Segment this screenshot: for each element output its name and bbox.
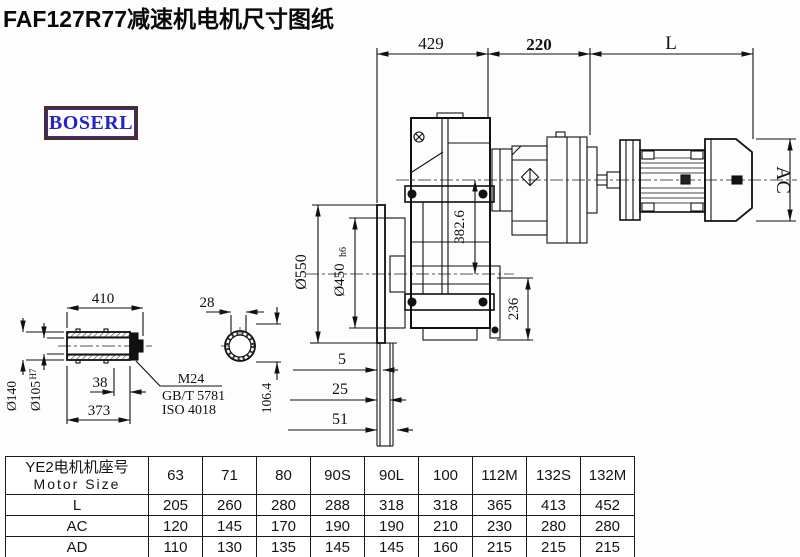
cell-L-80: 280 (257, 495, 311, 516)
label-gbt-5781: GB/T 5781 (162, 389, 225, 404)
table-row-AC: AC 120 145 170 190 190 210 230 280 280 (6, 516, 635, 537)
dimension-drawing: 429 220 L AC 382.6 236 Ø550 Ø450 h6 5 25… (0, 0, 800, 455)
main-view (288, 48, 797, 446)
cell-AD-132M: 215 (581, 537, 635, 557)
cell-AC-63: 120 (149, 516, 203, 537)
table-header-row: YE2电机机座号 Motor Size 63 71 80 90S 90L 100… (6, 457, 635, 495)
label-iso-4018: ISO 4018 (162, 403, 216, 418)
cell-AD-71: 130 (203, 537, 257, 557)
dim-450-tol-label: h6 (338, 247, 349, 257)
drawing-sheet: 429 220 L AC 382.6 236 Ø550 Ø450 h6 5 25… (0, 0, 800, 557)
cell-L-90S: 288 (311, 495, 365, 516)
cell-L-100: 318 (419, 495, 473, 516)
col-71: 71 (203, 457, 257, 495)
adapter-housing (492, 132, 597, 243)
motor-size-table: YE2电机机座号 Motor Size 63 71 80 90S 90L 100… (5, 456, 635, 557)
dim-220-label: 220 (526, 35, 552, 54)
col-80: 80 (257, 457, 311, 495)
cell-L-90L: 318 (365, 495, 419, 516)
output-flange (310, 205, 405, 446)
cell-AC-71: 145 (203, 516, 257, 537)
cell-AC-80: 170 (257, 516, 311, 537)
dimension-labels: 429 220 L AC 382.6 236 Ø550 Ø450 h6 5 25… (4, 33, 794, 428)
dim-382-label: 382.6 (452, 210, 468, 244)
dim-373-label: 373 (88, 403, 111, 419)
cell-AC-90L: 190 (365, 516, 419, 537)
cell-AD-112M: 215 (473, 537, 527, 557)
col-100: 100 (419, 457, 473, 495)
centerlines (306, 180, 797, 274)
cell-AD-63: 110 (149, 537, 203, 557)
dim-51-label: 51 (332, 411, 348, 428)
dim-AC-label: AC (772, 166, 794, 194)
dim-429-label: 429 (418, 34, 444, 53)
table-row-L: L 205 260 280 288 318 318 365 413 452 (6, 495, 635, 516)
cell-AD-100: 160 (419, 537, 473, 557)
cell-AD-90S: 145 (311, 537, 365, 557)
cell-L-112M: 365 (473, 495, 527, 516)
dim-236-label: 236 (506, 297, 522, 320)
dim-140-label: Ø140 (4, 381, 19, 411)
dim-28-label: 28 (200, 295, 215, 311)
shaft-end-view (206, 307, 281, 380)
col-132S: 132S (527, 457, 581, 495)
cell-AC-90S: 190 (311, 516, 365, 537)
col-90L: 90L (365, 457, 419, 495)
dim-L-label: L (665, 33, 677, 54)
cell-L-63: 205 (149, 495, 203, 516)
row-label-AC: AC (6, 516, 149, 537)
row-label-L: L (6, 495, 149, 516)
page-title: FAF127R77减速机电机尺寸图纸 (3, 0, 334, 34)
dim-5-label: 5 (338, 351, 346, 368)
cell-AD-90L: 145 (365, 537, 419, 557)
dim-25-label: 25 (332, 381, 348, 398)
cell-AC-132S: 280 (527, 516, 581, 537)
table-header-en: Motor Size (6, 476, 148, 492)
cell-L-71: 260 (203, 495, 257, 516)
cell-L-132S: 413 (527, 495, 581, 516)
table-header-motor-size: YE2电机机座号 Motor Size (6, 457, 149, 495)
dim-105-label: Ø105 (28, 381, 43, 411)
dim-106-label: 106.4 (259, 383, 274, 414)
dim-38-label: 38 (93, 375, 108, 391)
table-row-AD: AD 110 130 135 145 145 160 215 215 215 (6, 537, 635, 557)
dim-450-label: Ø450 (332, 263, 348, 296)
dim-410-label: 410 (92, 291, 115, 307)
cooling-fins (641, 158, 704, 203)
col-63: 63 (149, 457, 203, 495)
brand-logo-frame: BOSERL (47, 109, 135, 137)
brand-logo: BOSERL (44, 106, 138, 140)
dim-550-label: Ø550 (293, 254, 310, 290)
label-m24: M24 (178, 372, 204, 387)
col-112M: 112M (473, 457, 527, 495)
cell-AC-132M: 280 (581, 516, 635, 537)
cell-AC-112M: 230 (473, 516, 527, 537)
col-132M: 132M (581, 457, 635, 495)
cell-AD-132S: 215 (527, 537, 581, 557)
cell-AD-80: 135 (257, 537, 311, 557)
brand-logo-text: BOSERL (49, 113, 133, 133)
dim-105-tol-label: H7 (28, 368, 38, 379)
col-90S: 90S (311, 457, 365, 495)
row-label-AD: AD (6, 537, 149, 557)
cell-AC-100: 210 (419, 516, 473, 537)
table-header-cn: YE2电机机座号 (6, 459, 148, 476)
cell-L-132M: 452 (581, 495, 635, 516)
